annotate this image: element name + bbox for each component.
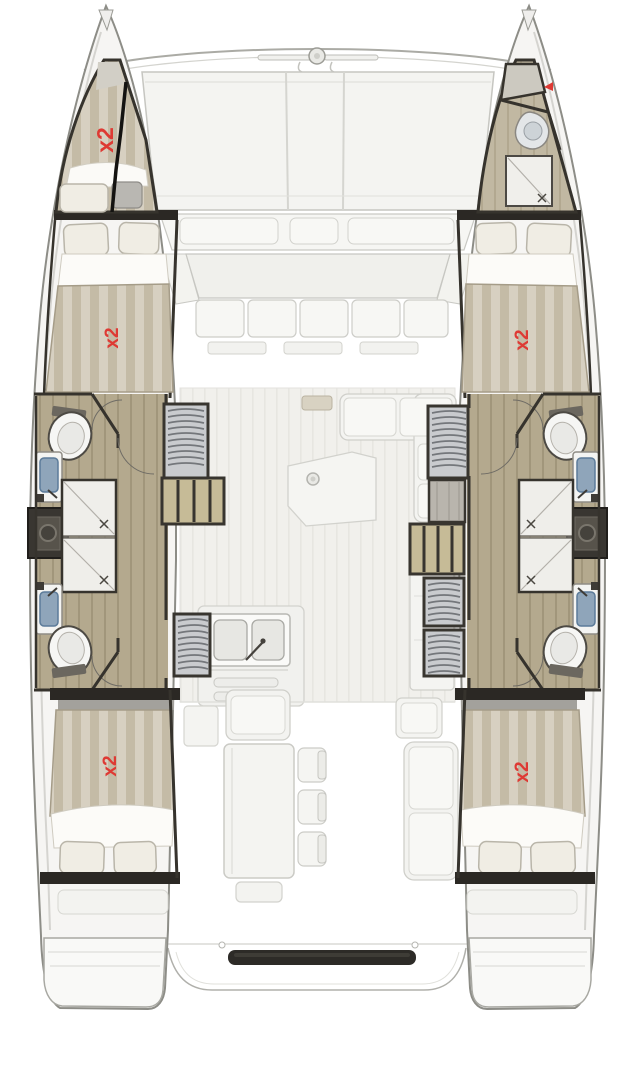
pillow <box>113 841 156 874</box>
davit-bar <box>228 950 416 965</box>
salon-bench-cushion <box>302 396 332 410</box>
cockpit-table <box>224 744 294 878</box>
pillow <box>118 222 159 254</box>
pillow <box>63 223 109 257</box>
berth-label-starboard-forward: x2 <box>512 329 533 350</box>
floor-plan-page: x2 x2 x2 x2 x2 <box>0 0 635 1080</box>
cockpit-end-seat <box>236 882 282 902</box>
floor-plan-canvas: x2 x2 x2 x2 x2 <box>0 0 635 1080</box>
cockpit-module <box>184 706 218 746</box>
sink <box>40 458 58 492</box>
transom <box>44 938 166 1007</box>
cockpit-chairs <box>298 748 326 866</box>
windshield <box>160 214 476 250</box>
shower <box>62 480 116 592</box>
sink <box>40 592 58 626</box>
berth-label-bow-crew: x2 <box>92 127 118 153</box>
aft-berth <box>40 688 180 914</box>
pillow <box>60 184 108 212</box>
aft-bulkhead <box>50 688 180 700</box>
berth-label-port-forward: x2 <box>102 327 123 348</box>
pillow <box>59 841 104 875</box>
salon-table <box>288 452 376 526</box>
pillow <box>112 182 142 208</box>
berth-label-starboard-aft: x2 <box>512 761 533 782</box>
aft-step <box>58 890 168 914</box>
berth-label-port-aft: x2 <box>100 755 121 776</box>
foredeck <box>142 72 494 210</box>
